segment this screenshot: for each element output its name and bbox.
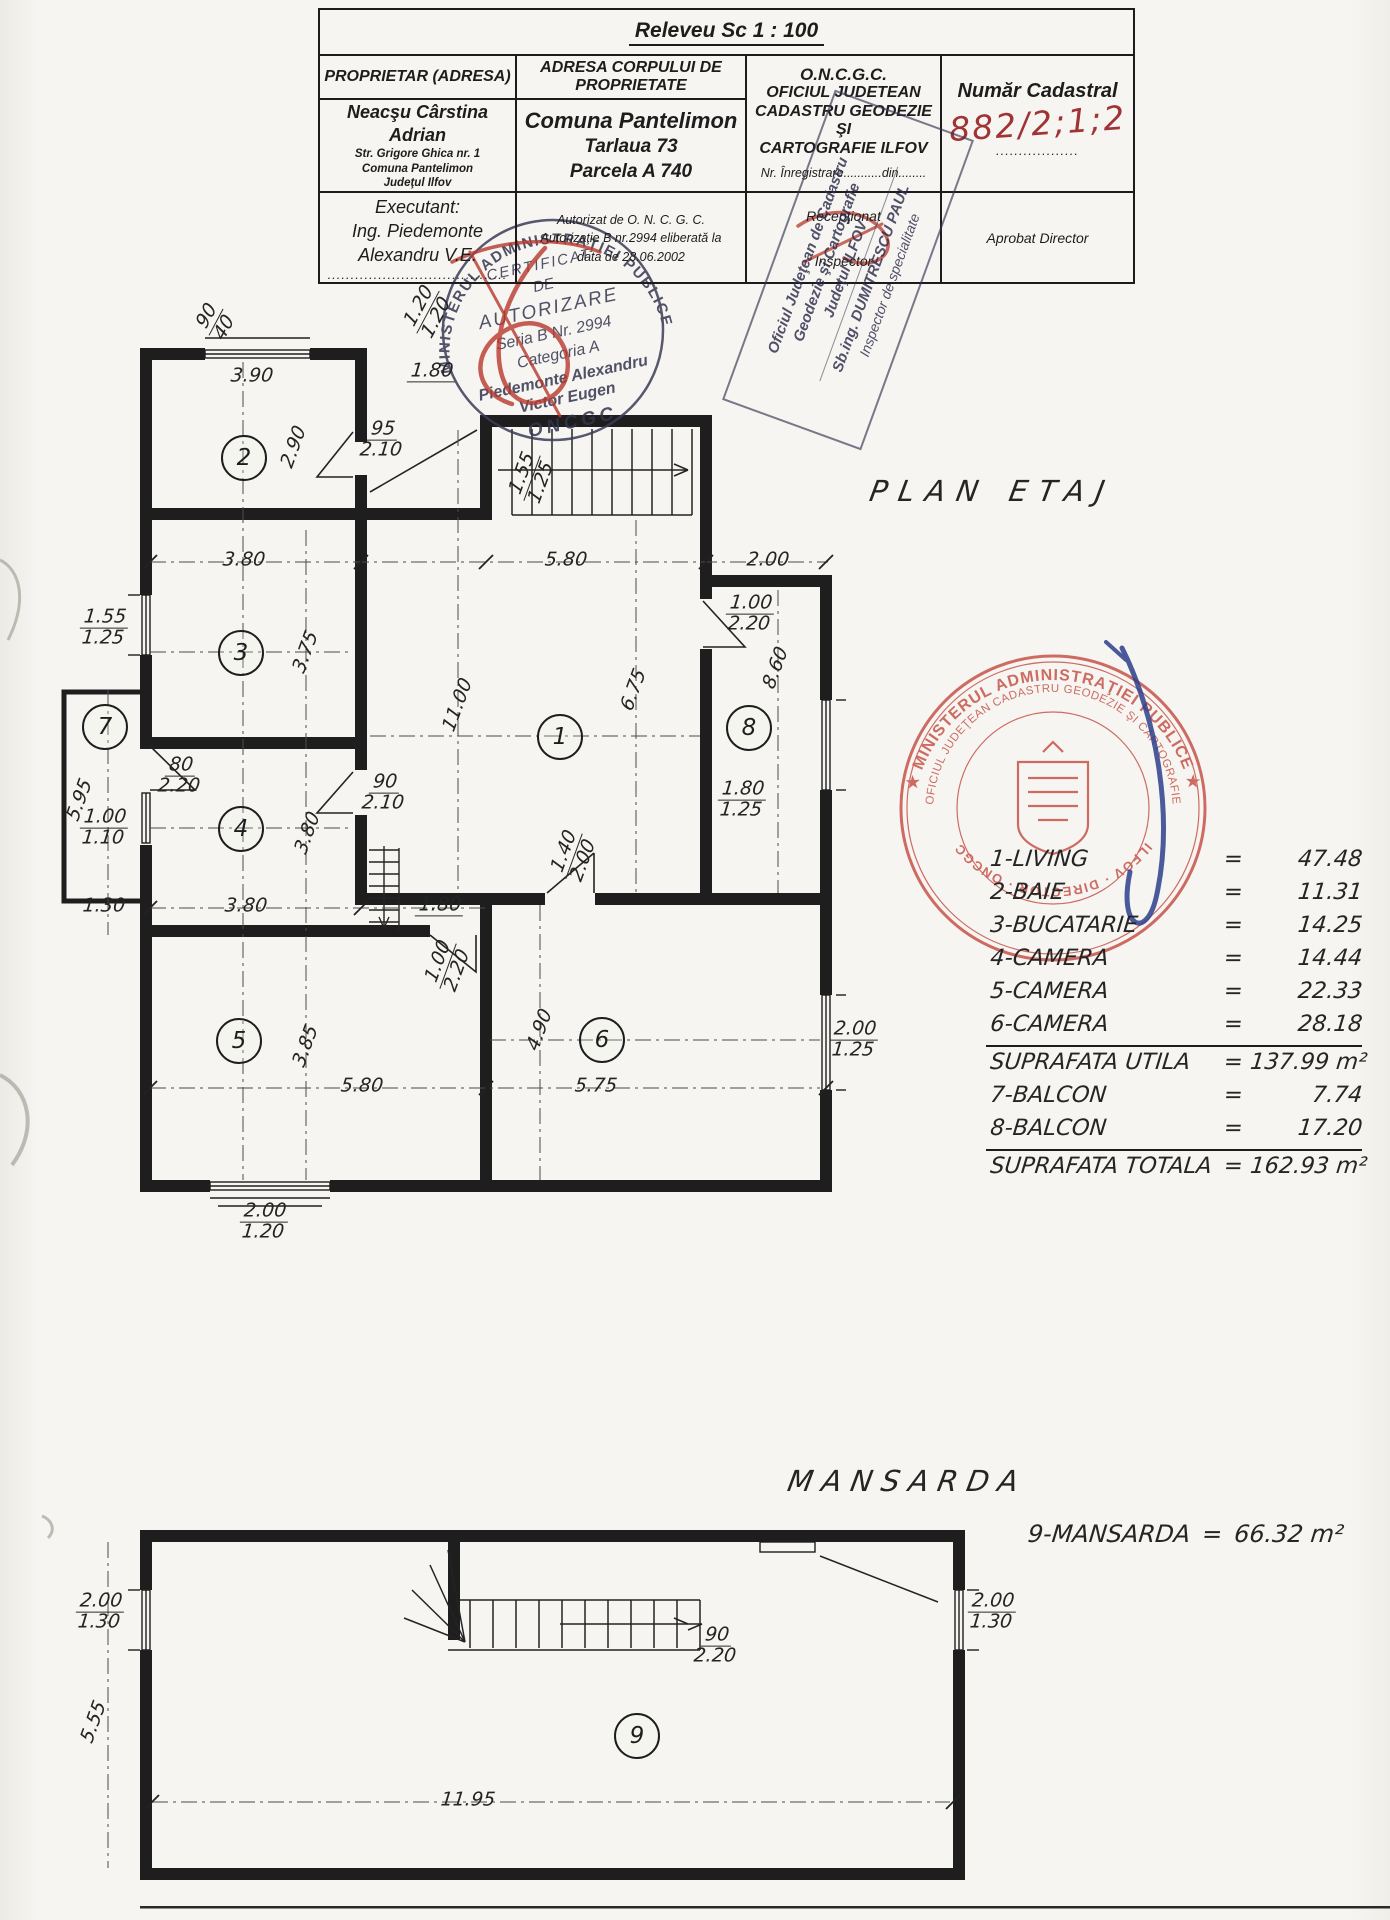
room-number-circle: 3 — [218, 630, 264, 676]
room-number: 9 — [630, 1723, 645, 1749]
dimension-label: 902.10 — [359, 773, 410, 814]
dimension-label: 11.95 — [438, 1790, 498, 1809]
room-number-circle: 4 — [218, 806, 264, 852]
room-number-circle: 7 — [82, 704, 128, 750]
dimension-label: 4.90 — [523, 1004, 556, 1056]
room-number-circle: 5 — [216, 1018, 262, 1064]
room-number-circle: 8 — [726, 705, 772, 751]
room-number: 8 — [742, 715, 757, 741]
dimension-label: 5.55 — [77, 1696, 110, 1748]
room-number: 5 — [232, 1028, 247, 1054]
dimension-label: 2.001.30 — [966, 1592, 1019, 1633]
dimension-label: 1.551.25 — [505, 446, 558, 509]
dimension-label: 5.75 — [572, 1076, 620, 1095]
dimension-label: 8.60 — [759, 642, 792, 694]
dimension-label: 9040 — [192, 297, 240, 347]
dimension-label: 1.80 — [415, 895, 466, 916]
dimension-label: 3.80 — [291, 807, 324, 859]
dimension-label: 1.551.25 — [78, 608, 131, 649]
room-number: 2 — [237, 445, 252, 471]
dimension-layer: 90403.901.201.201.80952.102.901.551.255.… — [0, 0, 1390, 1920]
dimension-label: 2.001.25 — [828, 1020, 881, 1061]
room-number: 6 — [595, 1027, 610, 1053]
dimension-label: 1.201.20 — [400, 279, 457, 345]
dimension-label: 11.00 — [439, 673, 476, 736]
room-number: 3 — [234, 640, 249, 666]
dimension-label: 6.75 — [617, 664, 650, 716]
dimension-label: 1.80 — [407, 361, 458, 382]
dimension-label: 5.80 — [542, 550, 590, 569]
dimension-label: 2.00 — [744, 550, 792, 569]
dimension-label: 3.75 — [289, 626, 322, 678]
dimension-label: 3.85 — [289, 1020, 322, 1072]
room-number-circle: 2 — [221, 435, 267, 481]
dimension-label: 1.002.20 — [421, 934, 474, 997]
dimension-label: 3.80 — [222, 896, 270, 915]
room-number: 4 — [234, 816, 249, 842]
dimension-label: 5.80 — [338, 1076, 386, 1095]
room-number-circle: 9 — [614, 1713, 660, 1759]
dimension-label: 1.801.25 — [716, 780, 769, 821]
dimension-label: 3.90 — [228, 366, 276, 385]
dimension-label: 1.402.00 — [547, 824, 600, 887]
room-number: 1 — [553, 724, 568, 750]
dimension-label: 2.90 — [277, 421, 310, 473]
dimension-label: 2.001.20 — [238, 1202, 291, 1243]
dimension-label: 1.001.10 — [78, 808, 131, 849]
dimension-label: 902.20 — [691, 1626, 742, 1667]
dimension-label: 802.20 — [155, 756, 206, 797]
dimension-label: 3.80 — [220, 550, 268, 569]
scanned-cadastral-document: { "title_block": { "releveu": "Releveu S… — [0, 0, 1390, 1920]
room-number-circle: 6 — [579, 1017, 625, 1063]
room-number-circle: 1 — [537, 714, 583, 760]
dimension-label: 1.30 — [80, 896, 128, 915]
dimension-label: 2.001.30 — [74, 1592, 127, 1633]
room-number: 7 — [98, 714, 113, 740]
dimension-label: 1.002.20 — [724, 594, 777, 635]
dimension-label: 952.10 — [357, 420, 408, 461]
